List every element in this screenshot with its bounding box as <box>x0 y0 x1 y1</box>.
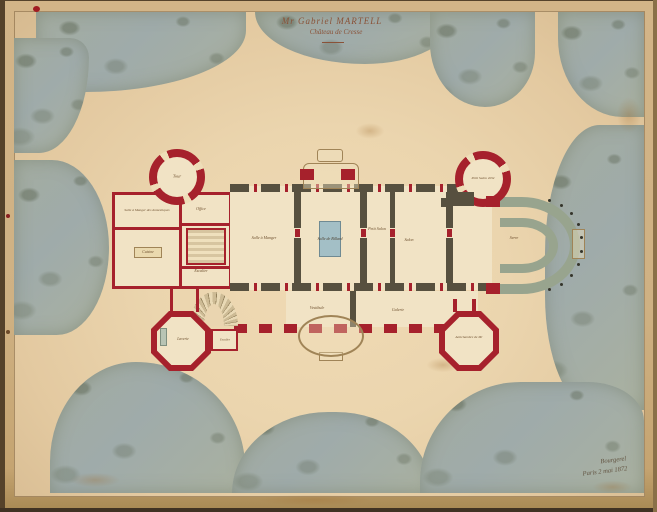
room-label-salle-de-billard: Salle de Billard <box>318 237 343 241</box>
pin-mark <box>6 214 10 218</box>
column-dot <box>560 283 563 286</box>
mount-left-edge <box>0 0 5 512</box>
column-dot <box>570 274 573 277</box>
room-label-office: Office <box>196 207 206 211</box>
mount-bottom-edge <box>0 508 657 512</box>
door-jamb <box>447 229 452 237</box>
conservatory-east-steps <box>572 229 585 259</box>
scanned-plan-photograph: Mr Gabriel MARTELL Château de Cresse Tou… <box>0 0 657 512</box>
service-staircase <box>186 228 226 265</box>
column-dot <box>548 288 551 291</box>
room-label-serre: Serre <box>510 236 519 240</box>
conservatory-pier <box>486 196 500 207</box>
room-label-escalier-pavillon: Escalier <box>220 338 230 341</box>
mount-right-edge <box>653 0 657 512</box>
room-label-escalier: Escalier <box>194 269 207 273</box>
plan-subtitle: Château de Cresse <box>310 28 363 36</box>
title-underline <box>322 42 344 43</box>
wing-partition-wall <box>114 227 180 230</box>
connecting-wall <box>472 299 476 312</box>
stain <box>235 492 395 508</box>
cross-wall <box>390 238 395 283</box>
column-dot <box>580 236 583 239</box>
column-dot <box>560 204 563 207</box>
wing-partition-wall <box>179 194 182 287</box>
room-label-antichambre: Antichambre de Mr <box>455 336 482 340</box>
cross-wall <box>360 192 367 228</box>
column-dot <box>548 199 551 202</box>
column-dot <box>580 250 583 253</box>
connecting-wall <box>170 289 173 312</box>
cross-wall <box>446 238 453 283</box>
porte-cochere-pier <box>341 169 355 180</box>
wax-seal-mark <box>33 6 40 12</box>
room-label-salle-a-manger: Salle à Manger <box>252 236 277 240</box>
porte-cochere-pier <box>300 169 314 180</box>
room-label-petit-salon-ete: Petit Salon d'été <box>472 177 495 181</box>
room-label-laverie: Laverie <box>177 337 189 341</box>
oval-terrace <box>298 315 364 357</box>
connecting-wall <box>196 289 199 312</box>
stain <box>585 478 640 496</box>
laverie-basin <box>160 328 167 346</box>
gallery-north-wall <box>230 283 492 291</box>
porte-cochere-capital <box>317 149 343 162</box>
pavilion-south-east-interior <box>445 317 493 365</box>
room-label-salle-manger-domestiques: Salle à Manger des domestiques <box>124 209 169 213</box>
conservatory-pier <box>486 283 500 294</box>
pin-mark <box>6 330 10 334</box>
north-facade-wall <box>230 184 492 192</box>
column-dot <box>577 223 580 226</box>
connecting-wall <box>453 299 457 312</box>
stain <box>60 470 130 490</box>
room-label-tour: Tour <box>173 175 181 180</box>
door-jamb <box>361 229 366 237</box>
stain <box>612 90 646 140</box>
door-jamb <box>390 229 395 237</box>
old-wall-fragment <box>441 198 450 207</box>
column-dot <box>570 212 573 215</box>
cross-wall <box>360 238 367 283</box>
door-jamb <box>295 229 300 237</box>
room-label-salon: Salon <box>404 238 413 242</box>
room-label-galerie: Galerie <box>392 308 404 312</box>
old-wall-fragment <box>448 192 474 206</box>
cross-wall <box>390 192 395 228</box>
cross-wall <box>294 238 301 283</box>
cross-wall <box>294 192 301 228</box>
room-label-petit-salon: Petit Salon <box>368 227 386 231</box>
wing-partition-wall <box>181 223 230 226</box>
column-dot <box>577 263 580 266</box>
room-label-cuisine: Cuisine <box>142 250 154 254</box>
plan-title: Mr Gabriel MARTELL <box>282 16 383 26</box>
room-label-vestibule: Vestibule <box>310 306 324 310</box>
stain <box>350 120 390 142</box>
